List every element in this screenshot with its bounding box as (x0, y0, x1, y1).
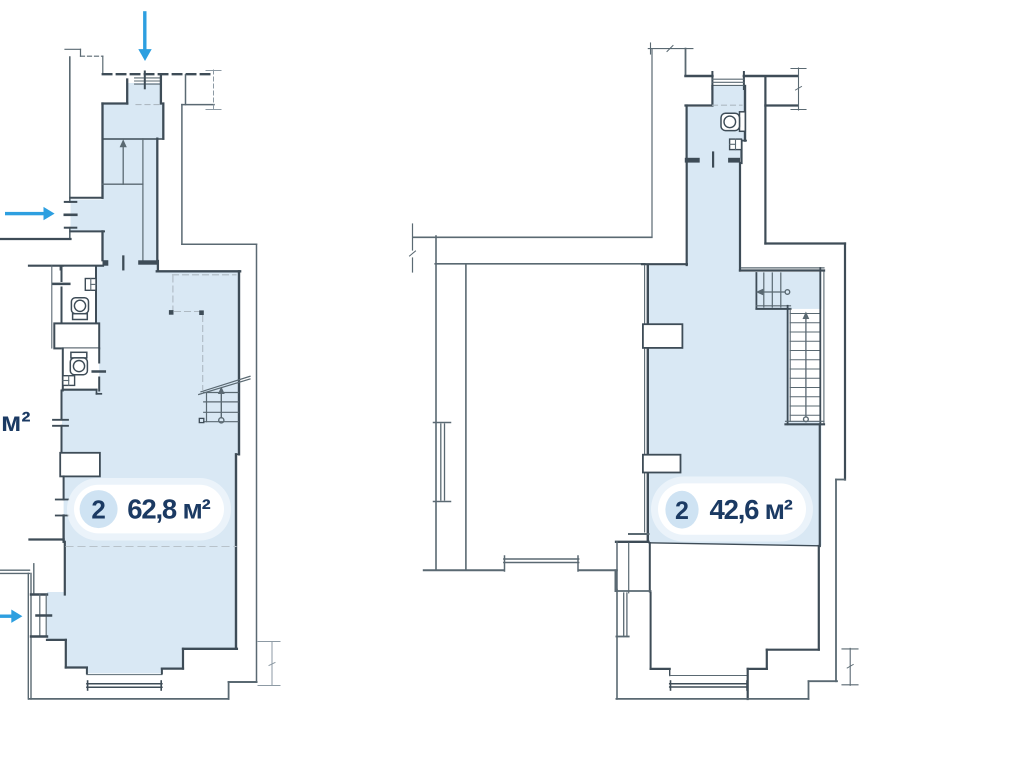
svg-text:2: 2 (91, 495, 105, 525)
svg-text:2: 2 (675, 497, 689, 525)
svg-text:м²: м² (1, 406, 31, 437)
svg-text:62,8 м²: 62,8 м² (127, 494, 210, 525)
svg-text:42,6 м²: 42,6 м² (710, 494, 793, 525)
